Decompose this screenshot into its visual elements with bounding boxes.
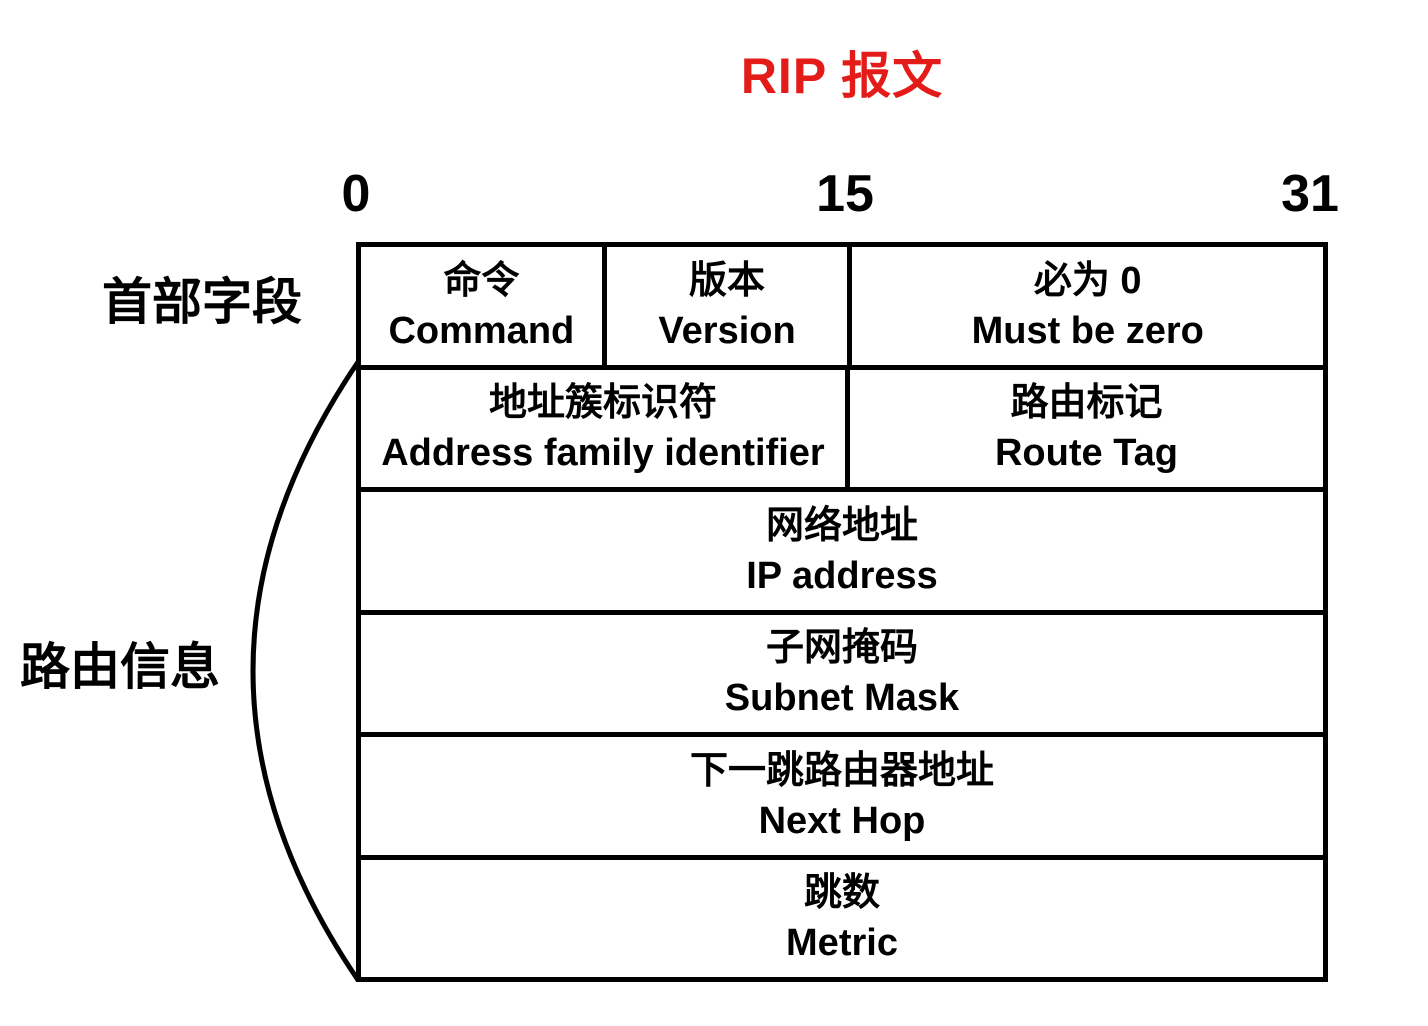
field-metric: 跳数 Metric: [361, 860, 1323, 978]
field-must-be-zero: 必为 0 Must be zero: [852, 247, 1323, 365]
field-version: 版本 Version: [607, 247, 848, 365]
field-ip-address-label-en: IP address: [746, 551, 938, 601]
field-must-be-zero-label-zh: 必为 0: [1034, 256, 1142, 306]
field-afi-label-en: Address family identifier: [381, 428, 824, 478]
field-next-hop-label-zh: 下一跳路由器地址: [690, 746, 994, 796]
field-address-family-identifier: 地址簇标识符 Address family identifier: [361, 370, 845, 488]
label-header-fields: 首部字段: [100, 277, 304, 327]
bit-label-15: 15: [816, 168, 874, 220]
table-row-2: 地址簇标识符 Address family identifier 路由标记 Ro…: [361, 370, 1323, 488]
field-subnet-mask: 子网掩码 Subnet Mask: [361, 615, 1323, 733]
table-row-6: 跳数 Metric: [361, 860, 1323, 978]
field-must-be-zero-label-en: Must be zero: [972, 306, 1204, 356]
field-metric-label-zh: 跳数: [804, 868, 880, 918]
table-row-5: 下一跳路由器地址 Next Hop: [361, 737, 1323, 855]
field-command-label-en: Command: [388, 306, 574, 356]
field-route-tag-label-zh: 路由标记: [1010, 378, 1162, 428]
field-route-tag: 路由标记 Route Tag: [850, 370, 1323, 488]
table-row-4: 子网掩码 Subnet Mask: [361, 615, 1323, 733]
bit-label-31: 31: [1281, 168, 1339, 220]
field-command-label-zh: 命令: [443, 256, 519, 306]
field-next-hop: 下一跳路由器地址 Next Hop: [361, 737, 1323, 855]
table-row-1: 命令 Command 版本 Version 必为 0 Must be zero: [361, 247, 1323, 365]
field-metric-label-en: Metric: [786, 918, 898, 968]
label-routing-info: 路由信息: [18, 642, 222, 692]
field-ip-address-label-zh: 网络地址: [766, 501, 918, 551]
bit-scale: 0 15 31: [0, 168, 1428, 222]
rip-packet-diagram: RIP 报文 0 15 31 首部字段 路由信息 命令 Command 版本 V…: [0, 0, 1428, 1026]
field-version-label-en: Version: [658, 306, 795, 356]
field-subnet-mask-label-en: Subnet Mask: [725, 673, 959, 723]
field-command: 命令 Command: [361, 247, 602, 365]
table-row-3: 网络地址 IP address: [361, 492, 1323, 610]
field-subnet-mask-label-zh: 子网掩码: [766, 623, 918, 673]
packet-table: 命令 Command 版本 Version 必为 0 Must be zero …: [356, 242, 1328, 982]
field-version-label-zh: 版本: [689, 256, 765, 306]
diagram-title: RIP 报文: [356, 36, 1328, 108]
field-afi-label-zh: 地址簇标识符: [489, 378, 717, 428]
field-route-tag-label-en: Route Tag: [995, 428, 1178, 478]
field-next-hop-label-en: Next Hop: [759, 796, 926, 846]
bit-label-0: 0: [342, 168, 371, 220]
field-ip-address: 网络地址 IP address: [361, 492, 1323, 610]
